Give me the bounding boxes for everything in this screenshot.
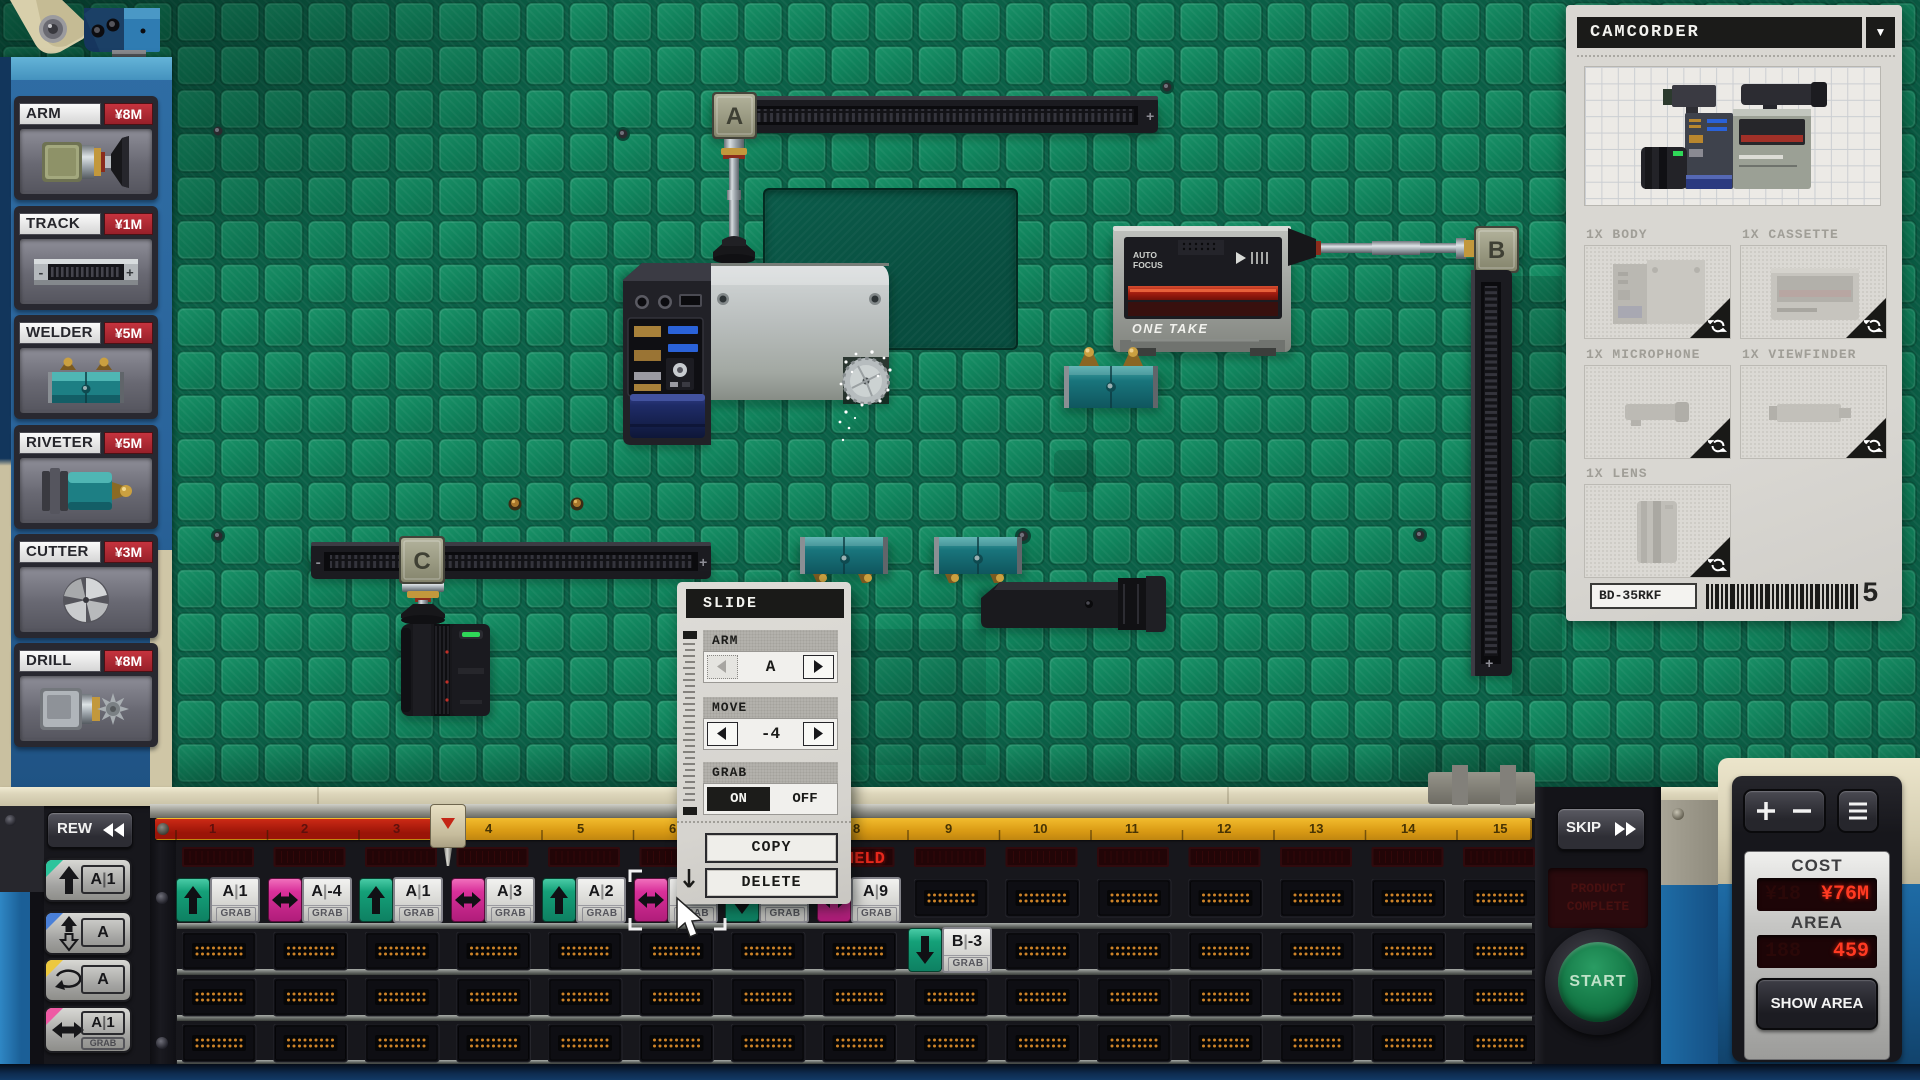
- svg-text:+: +: [699, 556, 707, 572]
- svg-text:+: +: [1146, 110, 1154, 126]
- svg-text:-: -: [314, 556, 322, 572]
- svg-text:-: -: [37, 266, 45, 281]
- svg-text:ONE TAKE: ONE TAKE: [1132, 322, 1208, 336]
- svg-text:FOCUS: FOCUS: [1133, 260, 1163, 270]
- svg-text:+: +: [126, 266, 134, 281]
- svg-text:C: C: [413, 548, 430, 575]
- svg-text:+: +: [1485, 657, 1493, 673]
- svg-text:A: A: [726, 103, 743, 130]
- svg-text:AUTO: AUTO: [1133, 250, 1157, 260]
- svg-text:B: B: [1488, 237, 1505, 264]
